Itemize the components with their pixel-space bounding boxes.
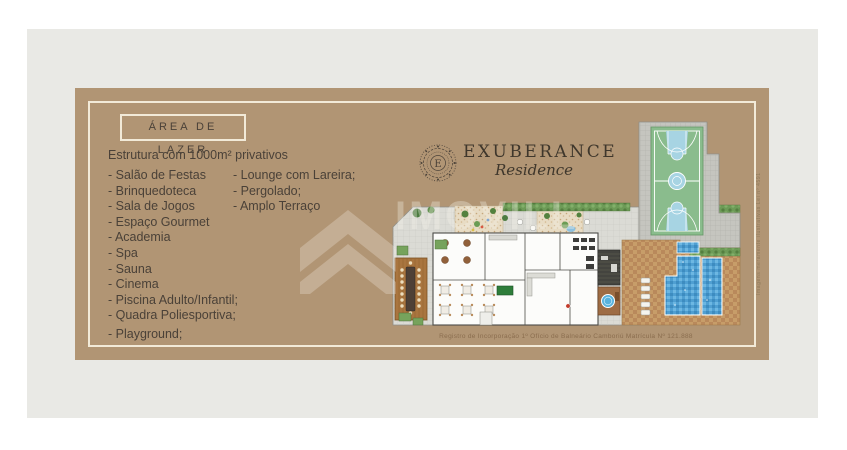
lounge-pergola (598, 250, 620, 285)
list-item: - Pergolado; (233, 184, 355, 200)
list-item: - Sala de Jogos (108, 199, 238, 215)
registration-text: Registro de Incorporação 1º Ofício de Ba… (385, 333, 747, 340)
list-item: - Cinema (108, 277, 238, 293)
leisure-subtitle: Estrutura com 1000m² privativos (108, 148, 288, 162)
list-item: - Salão de Festas (108, 168, 238, 184)
pergola-dining (395, 258, 427, 320)
list-item: - Sauna (108, 262, 238, 278)
basketball-court (651, 127, 703, 235)
list-item: - Quadra Poliesportiva; (108, 308, 238, 324)
list-item: - Espaço Gourmet (108, 215, 238, 231)
brochure-card: ÁREA DE LAZER Estrutura com 1000m² priva… (75, 88, 769, 360)
leisure-list-left: - Salão de Festas - Brinquedoteca - Sala… (108, 168, 238, 343)
list-item: - Brinquedoteca (108, 184, 238, 200)
spa-room (598, 287, 620, 315)
sauna-stove (566, 304, 570, 308)
brand-name: EXUBERANCE (463, 142, 595, 162)
backdrop-panel: ÁREA DE LAZER Estrutura com 1000m² priva… (27, 29, 818, 418)
ornament-emblem-icon: E (418, 143, 458, 183)
leisure-title-box: ÁREA DE LAZER (120, 114, 246, 141)
emblem-letter: E (434, 159, 441, 170)
legal-side-note: Imagens meramente ilustrativas Lei nº 45… (756, 145, 766, 295)
list-item: - Piscina Adulto/Infantil; (108, 293, 238, 309)
list-item: - Playground; (108, 327, 238, 343)
page: ÁREA DE LAZER Estrutura com 1000m² priva… (0, 0, 847, 450)
list-item: - Amplo Terraço (233, 199, 355, 215)
list-item: - Academia (108, 230, 238, 246)
list-item: - Lounge com Lareira; (233, 168, 355, 184)
brand-subname: Residence (473, 162, 595, 178)
list-item: - Spa (108, 246, 238, 262)
leisure-list-right: - Lounge com Lareira; - Pergolado; - Amp… (233, 168, 355, 215)
